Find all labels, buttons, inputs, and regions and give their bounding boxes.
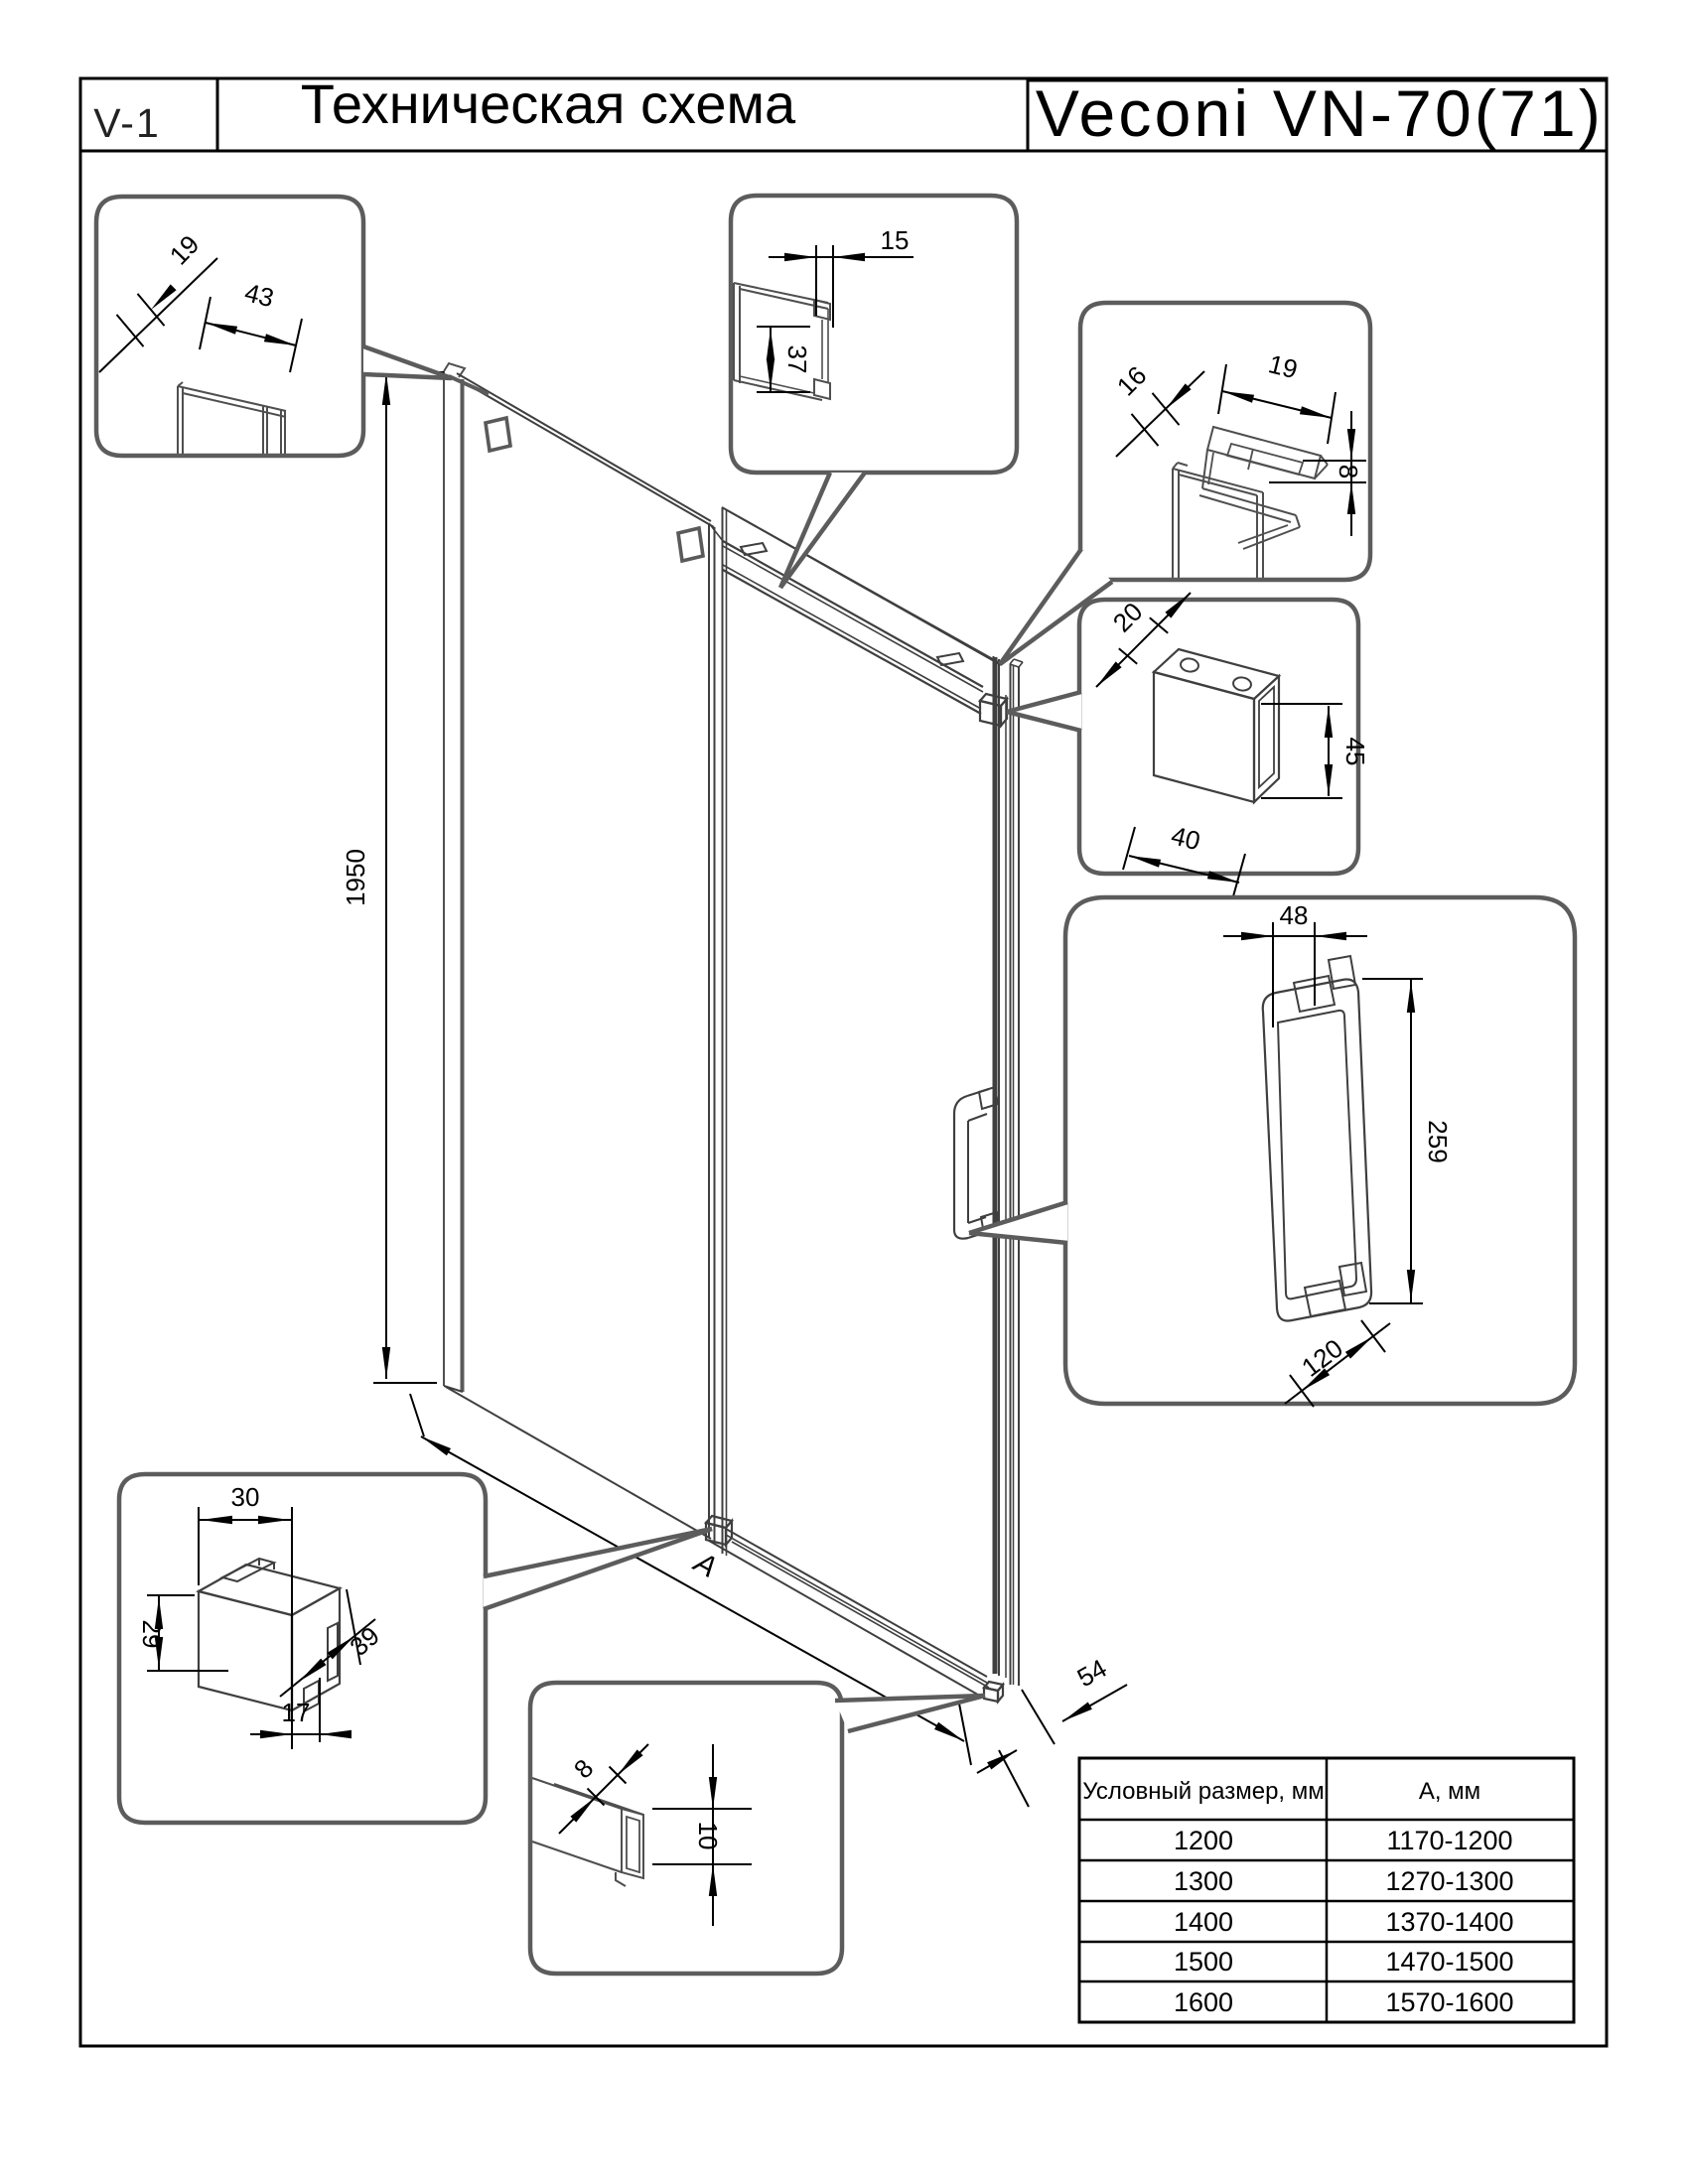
svg-text:1200: 1200 <box>1174 1826 1233 1855</box>
svg-text:54: 54 <box>1072 1653 1112 1693</box>
svg-text:V-1: V-1 <box>93 100 161 146</box>
svg-text:10: 10 <box>693 1822 723 1850</box>
svg-text:48: 48 <box>1280 900 1309 930</box>
svg-text:45: 45 <box>1340 738 1370 766</box>
svg-text:37: 37 <box>782 345 812 374</box>
svg-text:Условный размер, мм: Условный размер, мм <box>1082 1778 1325 1805</box>
svg-text:1570-1600: 1570-1600 <box>1385 1987 1513 2017</box>
svg-text:1500: 1500 <box>1174 1947 1233 1977</box>
svg-text:15: 15 <box>881 225 910 255</box>
svg-text:1400: 1400 <box>1174 1907 1233 1937</box>
svg-text:А, мм: А, мм <box>1419 1778 1480 1805</box>
svg-text:1170-1200: 1170-1200 <box>1386 1826 1512 1855</box>
svg-text:Техническая схема: Техническая схема <box>301 72 796 135</box>
svg-text:1470-1500: 1470-1500 <box>1385 1947 1513 1977</box>
svg-text:1600: 1600 <box>1174 1987 1233 2017</box>
svg-text:1950: 1950 <box>341 849 370 906</box>
svg-text:259: 259 <box>1423 1120 1453 1162</box>
svg-text:8: 8 <box>1334 465 1363 478</box>
svg-text:29: 29 <box>137 1620 167 1649</box>
svg-text:30: 30 <box>231 1482 260 1512</box>
svg-text:1270-1300: 1270-1300 <box>1385 1866 1513 1896</box>
svg-text:1370-1400: 1370-1400 <box>1385 1907 1513 1937</box>
svg-text:17: 17 <box>282 1698 311 1727</box>
svg-text:A: A <box>687 1545 722 1584</box>
svg-text:1300: 1300 <box>1174 1866 1233 1896</box>
svg-text:Veconi VN-70(71): Veconi VN-70(71) <box>1036 76 1604 150</box>
